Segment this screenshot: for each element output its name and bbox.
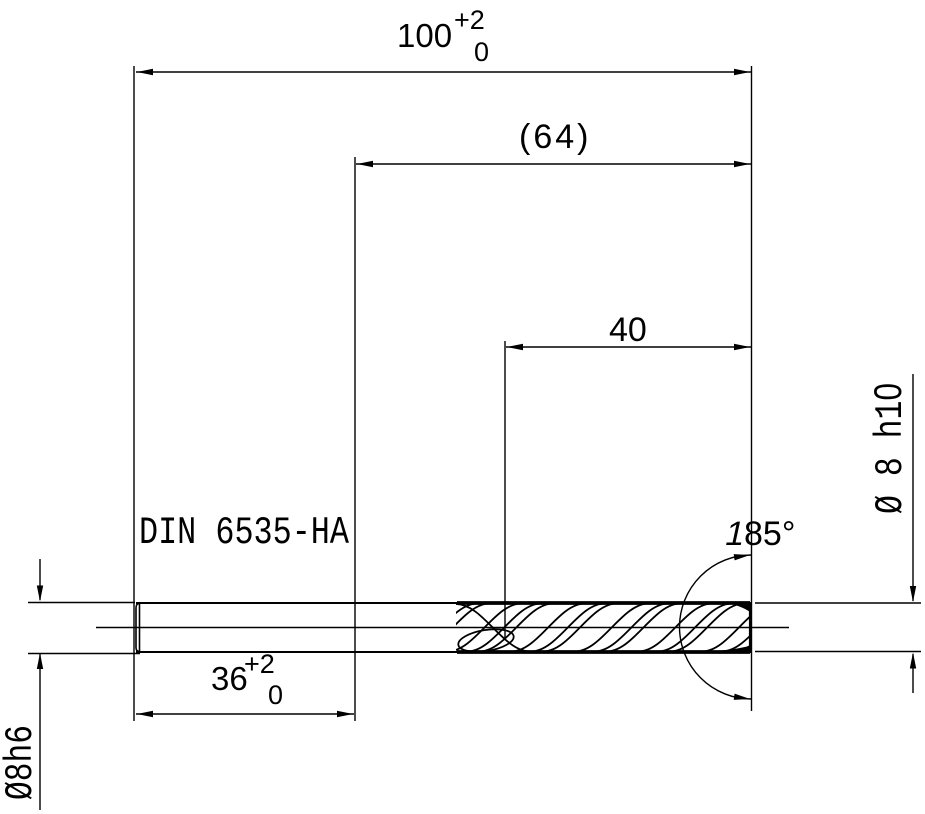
svg-text:+2: +2 xyxy=(454,5,485,35)
svg-text:DIN 6535-HA: DIN 6535-HA xyxy=(139,511,350,555)
svg-text:(64): (64) xyxy=(519,118,591,156)
svg-text:85°: 85° xyxy=(744,515,795,553)
svg-text:Ø 8 h10: Ø 8 h10 xyxy=(867,383,913,514)
svg-text:36: 36 xyxy=(211,660,248,697)
svg-text:100: 100 xyxy=(397,17,452,54)
svg-text:Ø8h6: Ø8h6 xyxy=(0,725,43,800)
svg-text:40: 40 xyxy=(609,311,647,349)
svg-text:0: 0 xyxy=(474,37,489,67)
svg-text:+2: +2 xyxy=(244,649,275,679)
svg-text:0: 0 xyxy=(268,680,283,710)
